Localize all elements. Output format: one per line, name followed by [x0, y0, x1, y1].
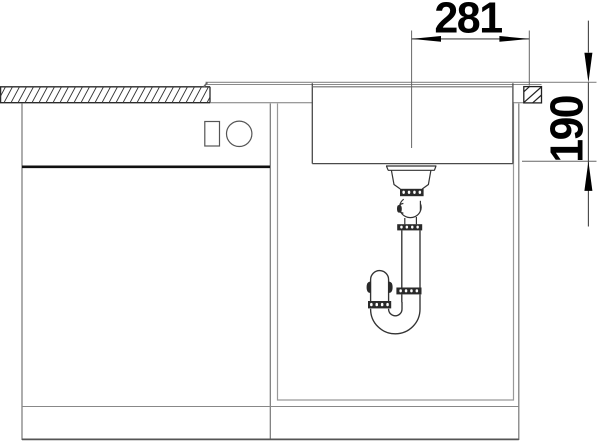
- svg-text:190: 190: [542, 96, 593, 163]
- svg-text:281: 281: [434, 0, 502, 43]
